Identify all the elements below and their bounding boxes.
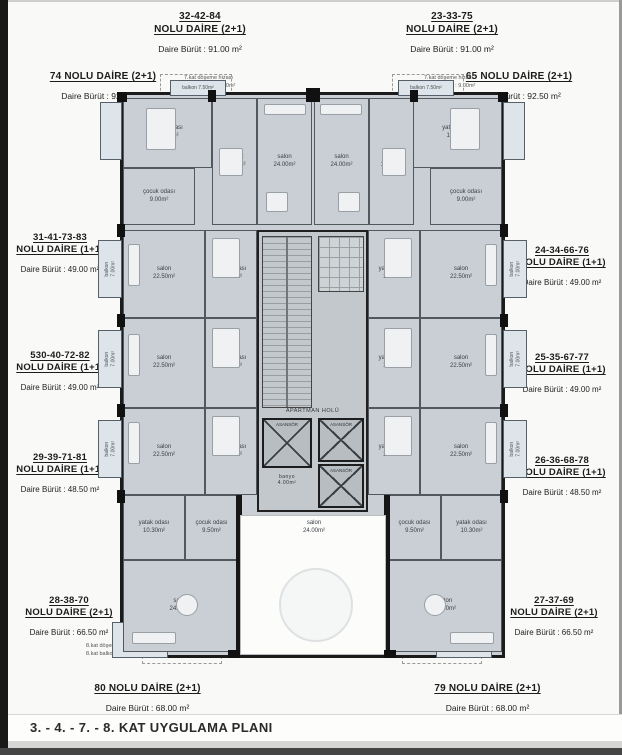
room-label: salon 22.50m²: [450, 444, 472, 460]
entrance-canopy-circle: [279, 568, 353, 642]
balcony-right-3: balkon 7.00m²: [503, 420, 527, 478]
unit-label-23-33-75: 23-33-75 NOLU DAİRE (2+1) Daire Bürüt : …: [372, 10, 532, 55]
room-kids-top-right: çocuk odası 9.00m²: [430, 168, 502, 225]
elevator-shaft-1: ASANSÖR: [262, 418, 312, 468]
room-label: yatak odası 10.30m²: [139, 520, 170, 536]
unit-type: NOLU DAİRE (2+1): [10, 607, 128, 619]
furniture-sofa: [320, 104, 362, 115]
furniture-sofa: [485, 244, 497, 286]
furniture-sofa: [132, 632, 176, 644]
room-kids-bottom-right: çocuk odası 9.50m²: [388, 495, 441, 560]
unit-area: Daire Bürüt : 68.00 m²: [45, 703, 250, 714]
elevator-label: ASANSÖR: [329, 422, 353, 428]
wall-pillar: [410, 90, 418, 102]
unit-numbers: 27-37-69: [495, 595, 613, 607]
furniture-bed: [450, 108, 480, 150]
balcony-top-right: balkon 7.50m²: [398, 80, 454, 96]
furniture-table: [338, 192, 360, 212]
floor-plan-sheet: 32-42-84 NOLU DAİRE (2+1) Daire Bürüt : …: [0, 0, 622, 755]
floor-plan-title: 3. - 4. - 7. - 8. KAT UYGULAMA PLANI: [30, 720, 273, 735]
elevator-label: ASANSÖR: [329, 468, 353, 474]
unit-area: Daire Bürüt : 66.50 m²: [495, 628, 613, 638]
unit-area: Daire Bürüt : 68.00 m²: [385, 703, 590, 714]
elevator-shaft-2: ASANSÖR: [318, 418, 364, 462]
furniture-sofa: [450, 632, 494, 644]
wall-pillar: [500, 314, 508, 327]
wall-pillar: [500, 404, 508, 417]
furniture-sofa: [128, 244, 140, 286]
elevator-shaft-3: ASANSÖR: [318, 464, 364, 508]
apartment-hall-label: APARTMAN HOLÜ: [257, 408, 368, 414]
room-bedroom-bottom-left: yatak odası 10.30m²: [123, 495, 185, 560]
bath-label: banyo 4.00m²: [260, 474, 314, 486]
furniture-sofa: [128, 422, 140, 464]
unit-title: 79 NOLU DAİRE (2+1): [385, 682, 590, 695]
room-label: salon 22.50m²: [153, 355, 175, 371]
unit-label-80: 80 NOLU DAİRE (2+1) Daire Bürüt : 68.00 …: [45, 682, 250, 714]
room-label: salon 24.00m²: [273, 154, 295, 170]
furniture-bed: [146, 108, 176, 150]
room-label: çocuk odası 9.50m²: [398, 520, 430, 536]
wall-pillar: [306, 88, 320, 102]
room-label: çocuk odası 9.00m²: [143, 189, 175, 205]
room-label: salon 22.50m²: [450, 266, 472, 282]
unit-area: Daire Bürüt : 48.50 m²: [6, 485, 114, 495]
furniture-table: [176, 594, 198, 616]
unit-numbers: 23-33-75: [372, 10, 532, 23]
room-label: salon 24.00m²: [330, 154, 352, 170]
furniture-table: [266, 192, 288, 212]
unit-area: Daire Bürüt : 66.50 m²: [10, 628, 128, 638]
unit-label-79: 79 NOLU DAİRE (2+1) Daire Bürüt : 68.00 …: [385, 682, 590, 714]
entrance-void: salon 24.00m²: [240, 515, 386, 655]
unit-title: 80 NOLU DAİRE (2+1): [45, 682, 250, 695]
balcony-label: balkon 7.00m²: [509, 351, 522, 367]
unit-type: NOLU DAİRE (2+1): [372, 23, 532, 36]
balcony-label: balkon 7.00m²: [509, 441, 522, 457]
balcony-left-1: balkon 7.00m²: [98, 240, 122, 298]
balcony-corner-right: [503, 102, 525, 160]
room-bedroom-bottom-right: yatak odası 10.30m²: [441, 495, 502, 560]
wall-pillar: [117, 224, 125, 237]
balcony-left-3: balkon 7.00m²: [98, 420, 122, 478]
wall-pillar: [117, 490, 125, 503]
furniture-dining-table: [382, 148, 406, 176]
unit-area: Daire Bürüt : 91.00 m²: [120, 44, 280, 55]
balcony-label: balkon 7.00m²: [104, 261, 117, 277]
room-label: salon 22.50m²: [153, 444, 175, 460]
wall-pillar: [498, 92, 508, 102]
balcony-top-left: balkon 7.50m²: [170, 80, 226, 96]
unit-area: Daire Bürüt : 48.50 m²: [508, 488, 616, 498]
balcony-right-1: balkon 7.00m²: [503, 240, 527, 298]
furniture-sofa: [264, 104, 306, 115]
unit-label-27-37-69: 27-37-69 NOLU DAİRE (2+1) Daire Bürüt : …: [495, 595, 613, 638]
elevator-label: ASANSÖR: [275, 422, 299, 428]
furniture-sofa: [128, 334, 140, 376]
wc-block: [318, 236, 364, 292]
footer-dark-band: [0, 748, 622, 755]
unit-numbers: 32-42-84: [120, 10, 280, 23]
unit-label-32-42-84: 32-42-84 NOLU DAİRE (2+1) Daire Bürüt : …: [120, 10, 280, 55]
wall-pillar: [500, 490, 508, 503]
furniture-table: [424, 594, 446, 616]
room-label: salon 22.50m²: [153, 266, 175, 282]
balcony-label: balkon 7.00m²: [104, 441, 117, 457]
furniture-sofa: [485, 334, 497, 376]
balcony-label: balkon 7.00m²: [509, 261, 522, 277]
furniture-bed: [212, 416, 240, 456]
room-kids-bottom-left: çocuk odası 9.50m²: [185, 495, 238, 560]
unit-area: Daire Bürüt : 91.00 m²: [372, 44, 532, 55]
wall-pillar: [117, 404, 125, 417]
furniture-bed: [384, 328, 412, 368]
balcony-corner-left: [100, 102, 122, 160]
wall-pillar: [384, 650, 396, 658]
balcony-label: balkon 7.00m²: [104, 351, 117, 367]
balcony-right-2: balkon 7.00m²: [503, 330, 527, 388]
room-label: salon 24.00m²: [284, 520, 344, 536]
stairs: [262, 236, 312, 408]
unit-label-28-38-70: 28-38-70 NOLU DAİRE (2+1) Daire Bürüt : …: [10, 595, 128, 638]
sheet-top-edge: [0, 0, 622, 2]
wall-pillar: [117, 314, 125, 327]
furniture-bed: [384, 416, 412, 456]
furniture-bed: [384, 238, 412, 278]
wall-pillar: [117, 92, 127, 102]
wall-pillar: [500, 224, 508, 237]
unit-numbers: 28-38-70: [10, 595, 128, 607]
furniture-bed: [212, 238, 240, 278]
room-label: yatak odası 10.30m²: [456, 520, 487, 536]
wall-pillar: [228, 650, 240, 658]
room-kids-top-left: çocuk odası 9.00m²: [123, 168, 195, 225]
unit-type: NOLU DAİRE (2+1): [120, 23, 280, 36]
room-label: çocuk odası 9.50m²: [195, 520, 227, 536]
furniture-dining-table: [219, 148, 243, 176]
room-label: çocuk odası 9.00m²: [450, 189, 482, 205]
furniture-sofa: [485, 422, 497, 464]
unit-type: NOLU DAİRE (2+1): [495, 607, 613, 619]
room-label: salon 22.50m²: [450, 355, 472, 371]
furniture-bed: [212, 328, 240, 368]
wall-pillar: [208, 90, 216, 102]
balcony-left-2: balkon 7.00m²: [98, 330, 122, 388]
footer-light-band: [8, 741, 622, 748]
